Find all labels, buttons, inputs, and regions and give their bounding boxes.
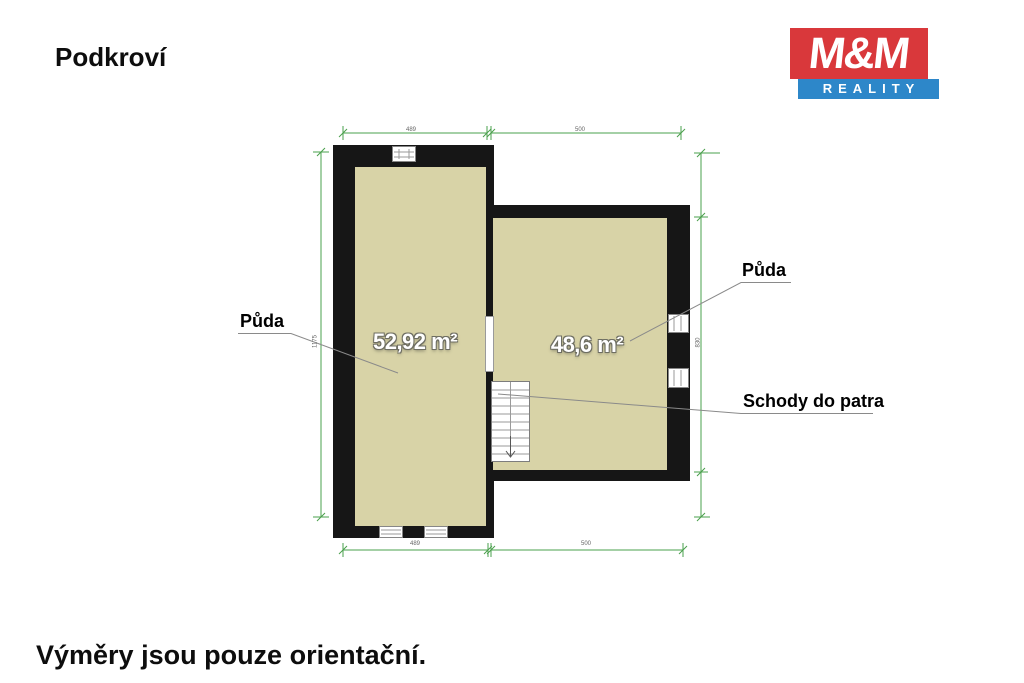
room-right-label: Půda (742, 260, 786, 281)
dimension-line-bottom (339, 543, 687, 557)
dim-bottom-left: 489 (400, 541, 430, 548)
dim-left-side: 1175 (313, 327, 320, 357)
page-title: Podkroví (55, 42, 166, 73)
logo-text: M&M (807, 28, 911, 79)
dimension-line-top (339, 126, 685, 140)
floorplan-page: Podkroví M&M REALITY (0, 0, 1024, 683)
footer-note: Výměry jsou pouze orientační. (36, 640, 426, 671)
logo-subtitle-bar: REALITY (798, 79, 939, 99)
dim-bottom-right: 500 (571, 541, 601, 548)
dim-top-left: 489 (396, 127, 426, 134)
room-left-area: 52,92 m² (340, 329, 490, 355)
room-right-area: 48,6 m² (512, 332, 662, 358)
stairs-label: Schody do patra (743, 391, 884, 412)
logo-subtitle: REALITY (817, 79, 921, 99)
logo-mark: M&M (790, 28, 928, 79)
dim-top-right: 500 (565, 127, 595, 134)
room-left-label: Půda (240, 311, 284, 332)
dim-right-side: 830 (696, 328, 703, 358)
